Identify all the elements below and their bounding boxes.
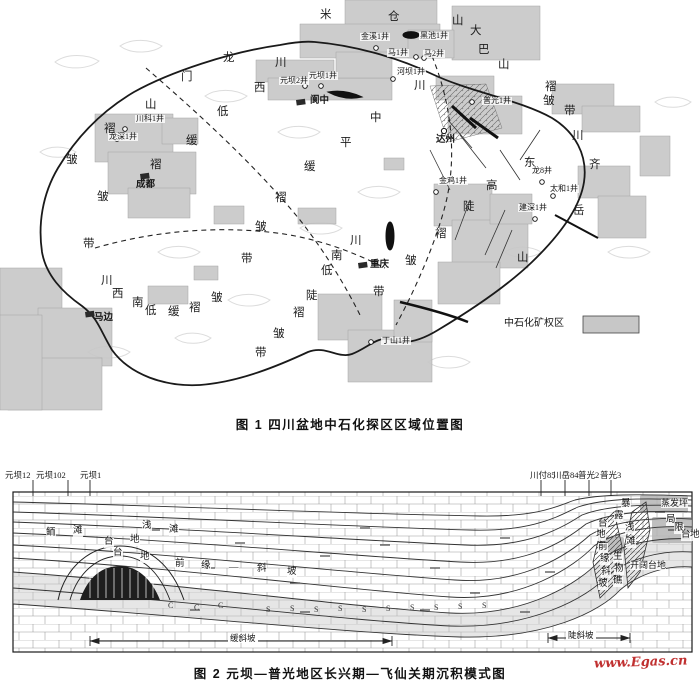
well-symbol [115,137,120,142]
well-symbol [414,55,419,60]
well-symbol [422,56,427,61]
well-symbol [533,217,538,222]
artwork-canvas [0,0,700,687]
city-symbol [441,128,446,133]
well-symbol [369,340,374,345]
legend-swatch [583,316,639,333]
well-symbol [303,84,308,89]
fig2-caption: 图 2 元坝—普光地区长兴期—飞仙关期沉积模式图 [0,663,700,682]
well-symbol [434,190,439,195]
well-symbol [540,180,545,185]
fig2-section-art [13,480,692,652]
well-symbol [123,127,128,132]
fig1-caption: 图 1 四川盆地中石化探区区域位置图 [0,414,700,433]
permit-blocks [0,0,670,410]
well-symbol [391,77,396,82]
city-symbol [358,262,368,269]
fig1-map-art [0,0,691,410]
well-symbol [374,46,379,51]
page: { "colors": {"permit_gray":"#c7c7c7","sh… [0,0,700,687]
well-symbol [470,100,475,105]
well-symbol [551,194,556,199]
well-symbol [319,84,324,89]
